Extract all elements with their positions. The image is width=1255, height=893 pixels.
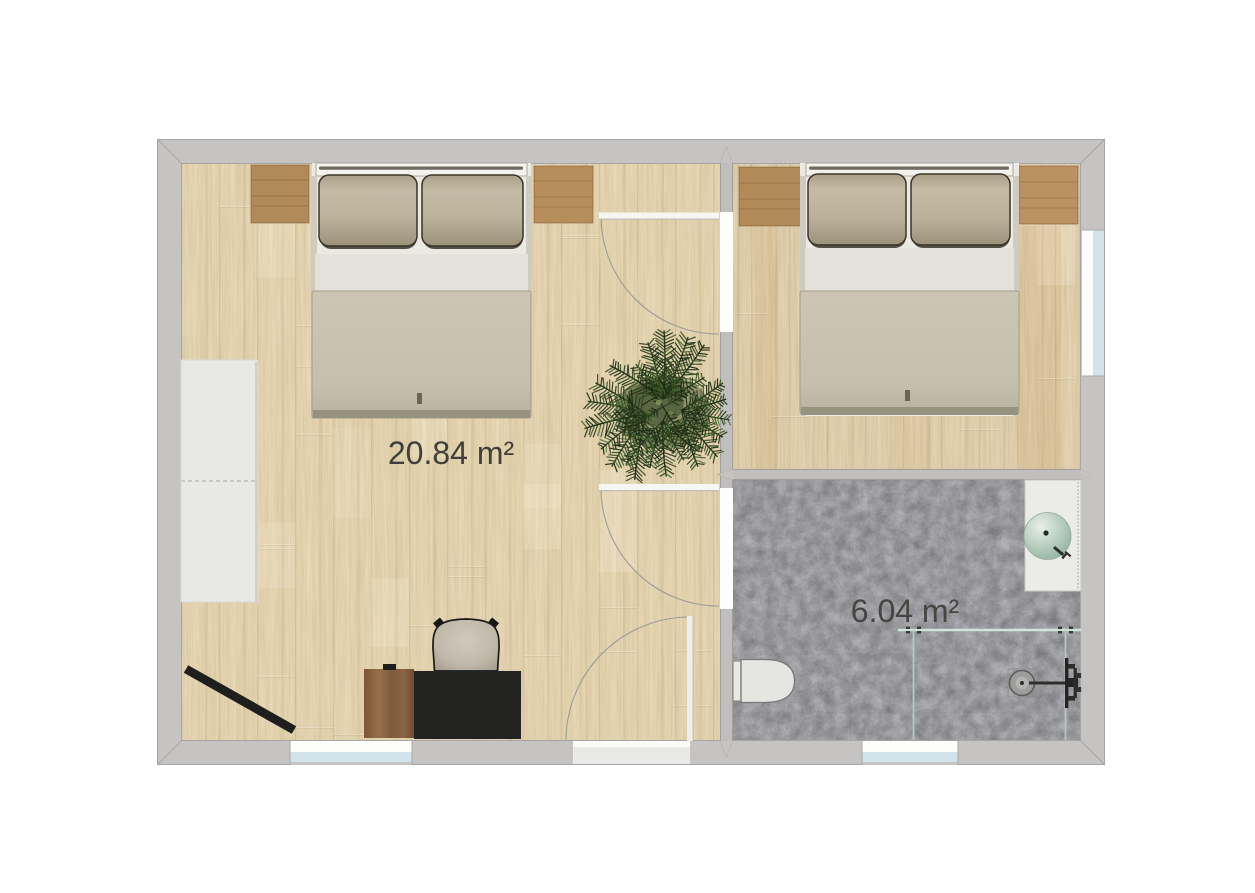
svg-text:20.84 m²: 20.84 m² [388, 435, 515, 471]
svg-text:6.04 m²: 6.04 m² [851, 593, 960, 629]
